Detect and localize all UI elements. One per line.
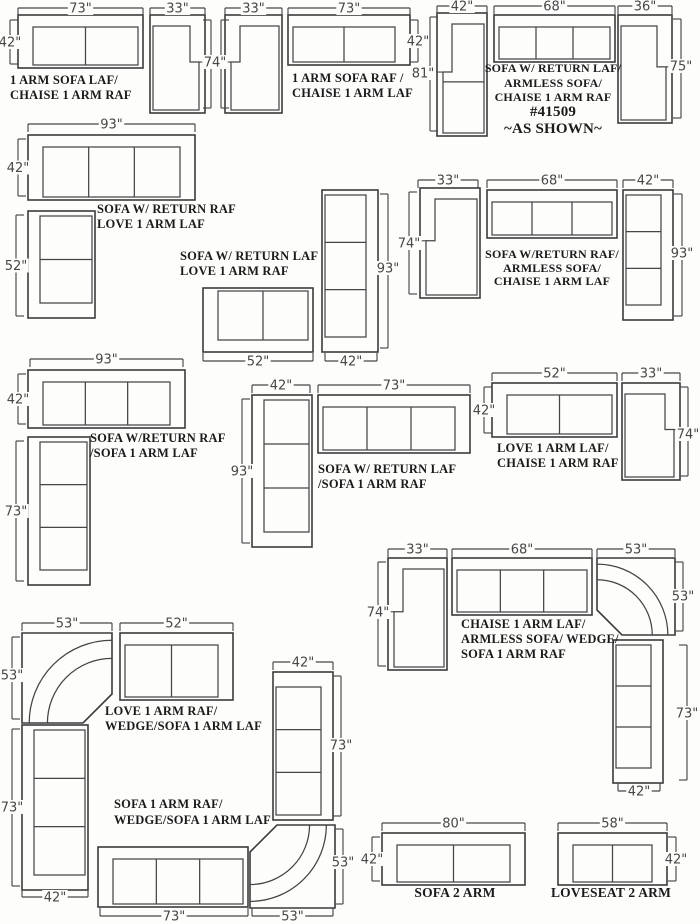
svg-text:33": 33": [242, 2, 265, 17]
piece-return-chaise-33: [420, 188, 480, 298]
dimension-93: 93": [30, 352, 183, 368]
svg-text:53": 53": [625, 543, 648, 558]
dimension-42: 42": [471, 387, 496, 433]
dimension-53: 53": [330, 829, 355, 904]
piece-loveseat-52-1arm-laf: [28, 211, 95, 318]
piece-sofa-73-1arm-laf: [98, 847, 248, 907]
dimension-42: 42": [618, 783, 660, 800]
group-sofa-return-raf-armless-chaise-laf: 33"74"68"42"93": [396, 173, 694, 320]
piece-sofa-73-1arm-raf: [288, 15, 410, 65]
dimension-73: 73": [328, 676, 353, 816]
svg-text:42": 42": [44, 891, 67, 906]
piece-chaise-33-raf: [150, 15, 205, 113]
dimension-33: 33": [418, 173, 478, 189]
group-sofa-raf-wedge-sofa-laf: 42"73"73"53"53": [98, 655, 356, 924]
svg-text:33": 33": [406, 543, 429, 558]
svg-text:42": 42": [270, 379, 293, 394]
piece-armless-sofa-68: [494, 15, 615, 62]
dimension-42: 42": [405, 20, 430, 62]
svg-text:53": 53": [281, 910, 304, 924]
piece-sofa-return-42-laf: [437, 13, 487, 136]
svg-text:42": 42": [473, 404, 496, 419]
dimension-33: 33": [388, 542, 447, 558]
dimension-68: 68": [494, 0, 615, 15]
group-sofa-return-raf-love-laf: 93"42"52": [3, 117, 195, 318]
svg-text:42": 42": [292, 656, 315, 671]
svg-text:81": 81": [412, 67, 435, 82]
dimension-42: 42": [325, 353, 377, 370]
piece-sofa-73-1arm-laf: [28, 437, 90, 585]
svg-text:74": 74": [677, 428, 700, 443]
svg-text:53": 53": [332, 856, 355, 871]
svg-text:73": 73": [69, 2, 92, 17]
piece-sofa-73-1arm-laf: [18, 15, 143, 68]
dimension-58: 58": [558, 816, 667, 832]
group-love-laf-chaise-raf: 52"42"33"74": [471, 366, 700, 480]
dimension-93: 93": [229, 399, 254, 543]
svg-text:53": 53": [56, 617, 79, 632]
group-sofa-return-laf-love-raf: 52"42"93": [203, 190, 401, 370]
group-loveseat-2-arm: 58"42": [558, 816, 689, 885]
dimension-73: 73": [100, 908, 248, 924]
dimension-42: 42": [623, 173, 673, 189]
piece-wedge-53: [22, 633, 112, 723]
svg-text:74": 74": [204, 56, 227, 71]
piece-loveseat-52-1arm-raf: [120, 633, 233, 700]
diagram-svg: 73"42"33"74"33"73"42"81"42"68"36"75"93"4…: [0, 0, 700, 924]
piece-sofa-73-1arm-raf: [273, 672, 333, 820]
piece-sofa-73-1arm-raf: [318, 395, 470, 453]
piece-sofa-93-return-raf: [28, 370, 185, 428]
svg-text:52": 52": [247, 355, 270, 370]
svg-text:42": 42": [451, 0, 474, 15]
svg-text:68": 68": [543, 0, 566, 15]
svg-text:53": 53": [1, 669, 24, 684]
piece-loveseat-52-1arm-laf: [492, 383, 617, 437]
piece-chaise-33-laf: [225, 15, 282, 113]
dimension-73: 73": [288, 1, 410, 17]
piece-chaise-33-raf: [622, 383, 680, 480]
group-love-raf-wedge-sofa-laf: 53"53"52"73"42": [0, 616, 233, 906]
dimension-93: 93": [28, 117, 195, 133]
dimension-53: 53": [252, 908, 333, 924]
svg-text:42": 42": [340, 355, 363, 370]
svg-text:74": 74": [398, 237, 421, 252]
svg-text:75": 75": [670, 60, 693, 75]
svg-text:73": 73": [1, 801, 24, 816]
dimension-52: 52": [492, 366, 617, 382]
dimension-42: 42": [252, 378, 310, 394]
piece-sofa-93-vertical: [252, 395, 312, 547]
svg-text:42": 42": [0, 36, 21, 51]
dimension-42: 42": [5, 139, 30, 196]
svg-text:42": 42": [7, 161, 30, 176]
dimension-42: 42": [0, 20, 23, 64]
svg-text:74": 74": [367, 606, 390, 621]
group-sofa-raf-chaise-laf: 74"33"73"42": [202, 1, 430, 113]
svg-text:73": 73": [5, 505, 28, 520]
svg-text:93": 93": [95, 353, 118, 368]
svg-text:52": 52": [543, 367, 566, 382]
dimension-74: 74": [365, 562, 390, 666]
sectional-dimension-diagram: 73"42"33"74"33"73"42"81"42"68"36"75"93"4…: [0, 0, 700, 924]
group-sofa-return-laf-sofa-raf: 42"93"73": [229, 378, 470, 547]
dimension-73: 73": [674, 645, 699, 780]
svg-text:73": 73": [163, 910, 186, 924]
piece-sofa-73-1arm-raf: [613, 640, 663, 783]
piece-loveseat-58-2arm: [558, 833, 667, 885]
dimension-33: 33": [150, 1, 205, 17]
dimension-73: 73": [0, 729, 25, 886]
svg-text:42": 42": [665, 853, 688, 868]
piece-chaise-36-raf: [618, 15, 672, 123]
svg-text:33": 33": [166, 2, 189, 17]
dimension-53: 53": [0, 637, 25, 719]
svg-text:68": 68": [511, 543, 534, 558]
svg-text:33": 33": [640, 367, 663, 382]
svg-text:58": 58": [601, 817, 624, 832]
dimension-33: 33": [622, 366, 680, 382]
piece-chaise-33-laf: [388, 558, 447, 670]
dimension-74: 74": [675, 387, 700, 476]
dimension-52: 52": [120, 616, 233, 632]
svg-text:80": 80": [442, 817, 465, 832]
group-sofa-2-arm: 80"42": [359, 816, 525, 885]
group-sofa-return-raf-sofa-laf: 93"42"73": [3, 352, 185, 585]
piece-sofa-93-return-laf: [322, 190, 378, 352]
dimension-53: 53": [597, 542, 675, 558]
dimension-36: 36": [618, 0, 672, 15]
dimension-53: 53": [670, 562, 695, 631]
svg-text:73": 73": [338, 2, 361, 17]
dimension-73: 73": [318, 378, 470, 394]
svg-text:42": 42": [7, 393, 30, 408]
dimension-93: 93": [375, 194, 400, 348]
dimension-42: 42": [273, 655, 333, 671]
svg-text:42": 42": [361, 853, 384, 868]
svg-text:36": 36": [634, 0, 657, 15]
piece-wedge-53: [597, 558, 675, 635]
svg-text:52": 52": [5, 259, 28, 274]
piece-sofa-93-return-raf: [28, 135, 195, 200]
dimension-42: 42": [22, 889, 88, 906]
svg-text:73": 73": [676, 707, 699, 722]
svg-text:93": 93": [671, 247, 694, 262]
dimension-74: 74": [396, 192, 421, 294]
dimension-73: 73": [3, 441, 28, 581]
dimension-33: 33": [225, 1, 282, 17]
svg-text:93": 93": [100, 118, 123, 133]
piece-sofa-73-1arm-laf: [22, 725, 88, 890]
svg-text:68": 68": [541, 174, 564, 189]
piece-armless-sofa-68: [487, 190, 617, 238]
dimension-42: 42": [5, 374, 30, 424]
piece-wedge-53: [250, 825, 335, 908]
dimension-68: 68": [452, 542, 592, 558]
piece-loveseat-52-1arm-raf: [203, 288, 313, 352]
dimension-52: 52": [3, 215, 28, 316]
dimension-53: 53": [22, 616, 112, 632]
group-as-shown-configuration: 81"42"68"36"75": [410, 0, 693, 136]
svg-text:42": 42": [637, 174, 660, 189]
svg-text:53": 53": [672, 590, 695, 605]
dimension-52: 52": [203, 353, 313, 370]
svg-text:42": 42": [407, 35, 430, 50]
svg-text:52": 52": [165, 617, 188, 632]
piece-sofa-80-2arm: [382, 833, 525, 885]
svg-text:73": 73": [383, 379, 406, 394]
group-chaise-laf-armless-wedge-sofa-raf: 33"74"68"53"53"73"42": [365, 542, 699, 800]
dimension-73: 73": [18, 1, 143, 17]
dimension-68: 68": [487, 173, 617, 189]
svg-text:33": 33": [437, 174, 460, 189]
svg-text:93": 93": [377, 262, 400, 277]
piece-armless-sofa-68: [452, 558, 592, 615]
svg-text:93": 93": [231, 465, 254, 480]
piece-sofa-93-vertical: [623, 190, 673, 320]
svg-text:73": 73": [330, 739, 353, 754]
dimension-42: 42": [359, 837, 384, 881]
dimension-80: 80": [382, 816, 525, 832]
group-sofa-laf-chaise-raf: 73"42"33": [0, 1, 211, 113]
svg-text:42": 42": [628, 785, 651, 800]
